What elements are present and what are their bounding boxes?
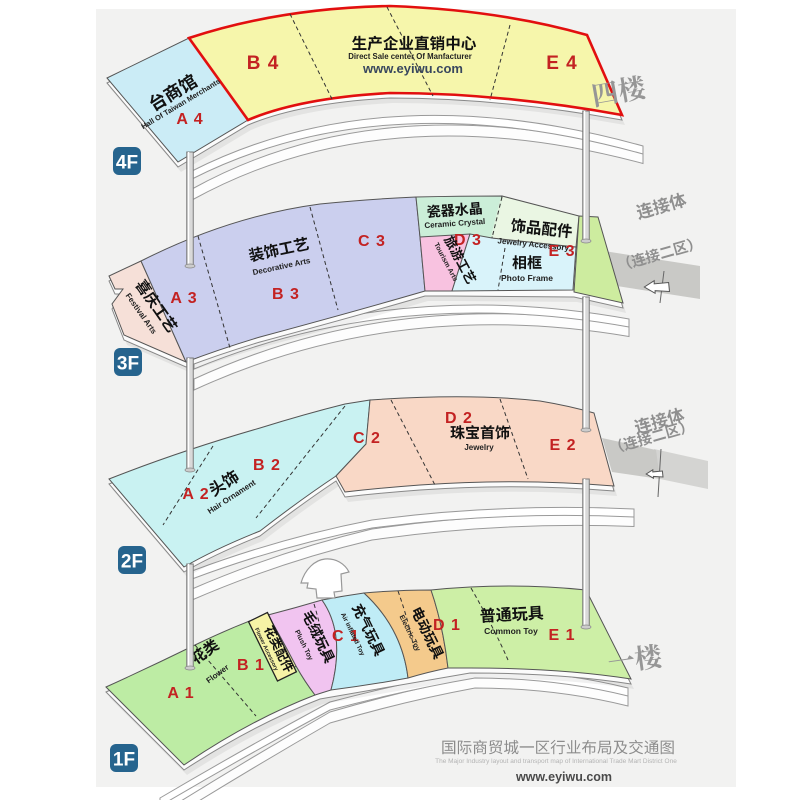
svg-text:3F: 3F [117,354,139,375]
svg-text:Common Toy: Common Toy [484,626,538,636]
svg-text:B 2: B 2 [253,457,281,474]
svg-text:B 3: B 3 [272,286,300,303]
svg-text:D 3: D 3 [454,232,482,249]
svg-text:D 2: D 2 [445,410,473,427]
svg-text:1F: 1F [113,750,135,771]
svg-text:www.eyiwu.com: www.eyiwu.com [362,61,463,76]
svg-text:2F: 2F [121,552,143,573]
svg-text:E 3: E 3 [548,243,575,260]
svg-text:C 2: C 2 [353,430,381,447]
svg-text:Direct Sale center Of Manfactu: Direct Sale center Of Manfacturer [348,52,472,61]
svg-text:A 3: A 3 [170,290,197,307]
svg-text:A 1: A 1 [167,685,194,702]
svg-text:www.eyiwu.com: www.eyiwu.com [515,770,612,784]
svg-text:Jewelry: Jewelry [464,443,494,452]
svg-text:E 1: E 1 [548,627,575,644]
svg-text:Photo Frame: Photo Frame [501,273,553,283]
svg-text:The Major Industry layout and: The Major Industry layout and transport … [435,758,677,765]
svg-text:A 4: A 4 [176,111,203,128]
svg-text:B 4: B 4 [247,53,280,74]
svg-text:B 1: B 1 [237,657,265,674]
svg-text:E 4: E 4 [546,53,578,74]
svg-text:E 2: E 2 [549,437,576,454]
svg-text:4F: 4F [116,153,138,174]
svg-text:D 1: D 1 [433,617,461,634]
svg-text:A 2: A 2 [182,486,209,503]
svg-text:C 3: C 3 [358,233,386,250]
